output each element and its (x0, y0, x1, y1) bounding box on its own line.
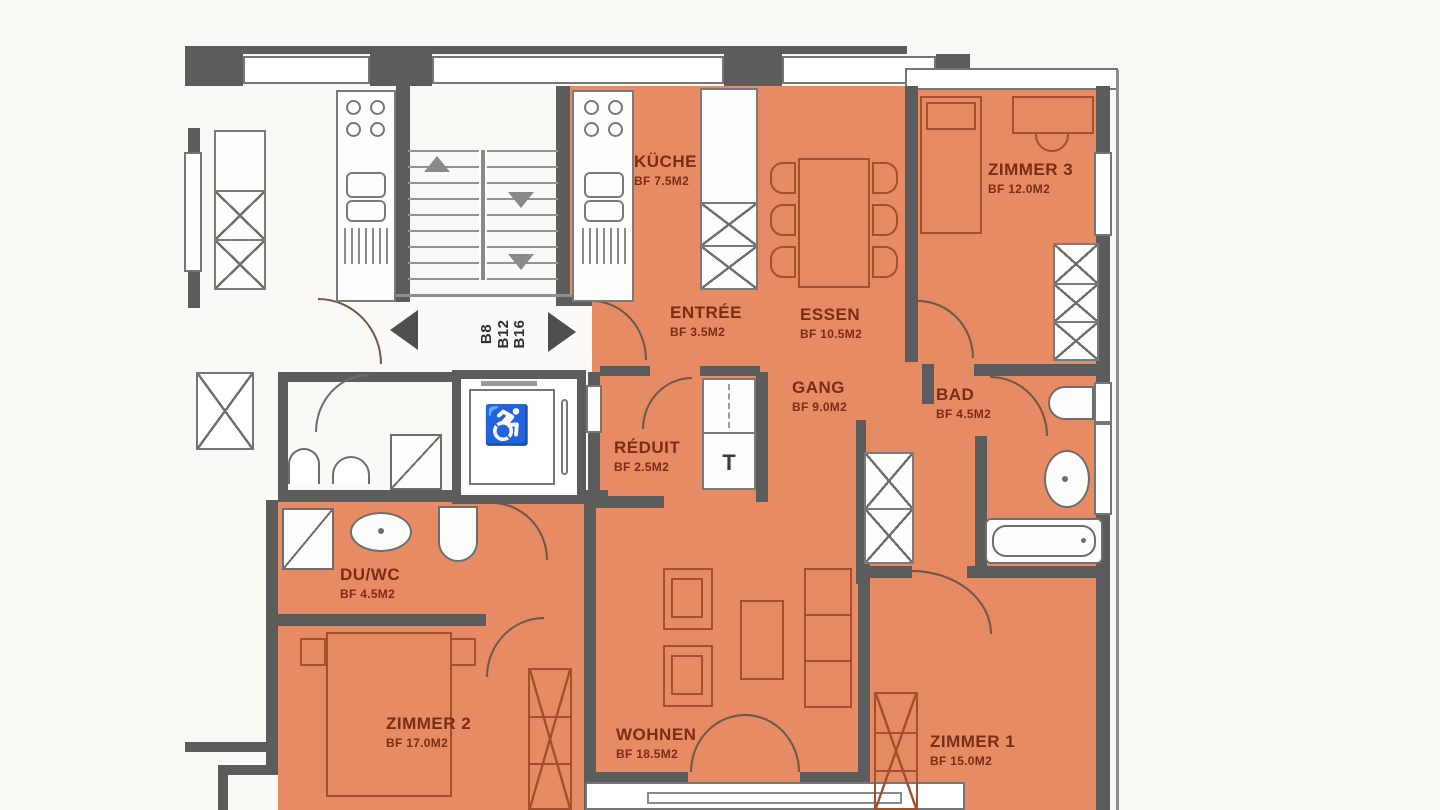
door-panel (586, 385, 602, 433)
wardrobe (1053, 243, 1099, 361)
bathtub (985, 518, 1103, 564)
wardrobe-divider (530, 763, 570, 765)
sink (584, 200, 624, 222)
unit-line: B12 (496, 319, 513, 348)
closet-shaft-line (728, 384, 730, 428)
door-arc-neighbor-bath (315, 374, 369, 432)
stair-direction-up-icon (424, 156, 450, 172)
wardrobe-x-cell (1055, 321, 1097, 359)
sofa-cushion-line (806, 660, 850, 662)
room-label-gang: GANGBF 9.0M2 (792, 378, 847, 414)
toilet (1048, 386, 1094, 420)
dining-chair (770, 246, 796, 278)
stair-direction-down-icon (508, 254, 534, 270)
window (432, 56, 724, 84)
wall-segment (278, 614, 486, 626)
unit-line: B16 (512, 319, 529, 348)
dining-chair (770, 162, 796, 194)
room-label-zimmer3: ZIMMER 3BF 12.0M2 (988, 160, 1073, 196)
wall-segment (600, 366, 650, 376)
room-label-duwc: DU/WCBF 4.5M2 (340, 565, 400, 601)
washbasin-drain (378, 528, 384, 534)
closet-divider (704, 432, 754, 434)
wardrobe-x-cell (1055, 245, 1097, 283)
window (905, 68, 1118, 90)
cabinet-x-cell (702, 245, 756, 288)
armchair (663, 645, 713, 707)
wall-segment (858, 566, 912, 578)
room-label-reduit: RÉDUITBF 2.5M2 (614, 438, 680, 474)
armchair-cushion (671, 655, 703, 695)
wall-segment (185, 54, 243, 86)
wardrobe-x-cell (1055, 283, 1097, 321)
toilet (438, 506, 478, 562)
dining-chair (872, 204, 898, 236)
wardrobe (528, 668, 572, 810)
wall-segment (922, 364, 934, 404)
coffee-table (740, 600, 784, 680)
room-label-kueche: KÜCHEBF 7.5M2 (634, 152, 697, 188)
unit-line: B8 (479, 319, 496, 348)
nightstand (450, 638, 476, 666)
washbasin (332, 456, 370, 484)
dining-chair (872, 246, 898, 278)
wardrobe-x-cell (866, 508, 912, 562)
desk (1012, 96, 1094, 134)
neighbor-tall-cabinet (214, 130, 266, 290)
appliance-hatch (344, 228, 388, 264)
appliance-hatch (582, 228, 626, 264)
neighbor-kitchen-counter (336, 90, 396, 302)
toilet (288, 448, 320, 484)
washbasin-drain (1062, 476, 1068, 482)
sink (346, 172, 386, 198)
dining-chair (770, 204, 796, 236)
dining-chair (872, 162, 898, 194)
shower (282, 508, 334, 570)
wall-segment (700, 366, 760, 376)
sink (346, 200, 386, 222)
cabinet-x-cell (702, 202, 756, 245)
wall-segment (974, 364, 1105, 376)
room-label-zimmer1: ZIMMER 1BF 15.0M2 (930, 732, 1015, 768)
wall-segment (266, 500, 278, 772)
wall-segment (278, 372, 288, 500)
room-label-zimmer2: ZIMMER 2BF 17.0M2 (386, 714, 471, 750)
tumbler-closet: T (702, 378, 756, 490)
wardrobe (874, 692, 918, 810)
entry-arrow-left-icon (390, 310, 418, 350)
wheelchair-icon: ♿ (483, 407, 530, 445)
elevator: ♿ (452, 370, 586, 504)
balcony-sill-line (647, 792, 902, 804)
armchair-cushion (671, 578, 703, 618)
sofa-cushion-line (806, 614, 850, 616)
pillow (926, 102, 976, 130)
cabinet-x-cell (216, 239, 264, 288)
unit-label: B8 B12 B16 (462, 292, 546, 376)
wall-segment (905, 296, 918, 362)
floor-plan: B8 B12 B16 ♿ (0, 0, 1440, 810)
wall-segment (584, 500, 596, 810)
wall-segment (905, 86, 918, 300)
wardrobe-divider (876, 770, 916, 772)
room-label-wohnen: WOHNENBF 18.5M2 (616, 725, 696, 761)
window (243, 56, 370, 84)
wardrobe-x-cell (866, 454, 912, 508)
kitchen-tall-cabinet (700, 88, 758, 290)
stair-rail (479, 150, 487, 280)
cabinet-x-cell (216, 190, 264, 239)
wardrobe-divider (530, 716, 570, 718)
window (184, 152, 202, 272)
armchair (663, 568, 713, 630)
wall-segment (596, 496, 664, 508)
hall-wardrobe (864, 452, 914, 564)
window (1094, 152, 1112, 236)
wall-segment (992, 566, 1105, 578)
room-label-entree: ENTRÉEBF 3.5M2 (670, 303, 742, 339)
wall-face-line (1116, 70, 1119, 810)
wall-segment (556, 86, 570, 302)
wall-segment (185, 742, 270, 752)
tumbler-label: T (704, 438, 754, 488)
kitchen-counter (572, 90, 634, 302)
dining-table (798, 158, 870, 288)
bathtub-drain (1081, 538, 1086, 543)
elevator-rail (561, 399, 568, 475)
window (1094, 382, 1112, 423)
entry-arrow-right-icon (548, 312, 576, 352)
room-label-essen: ESSENBF 10.5M2 (800, 305, 862, 341)
sofa (804, 568, 852, 708)
shower (390, 434, 442, 490)
nightstand (300, 638, 326, 666)
door-arc-neighbor (318, 298, 382, 364)
stair-direction-down-icon (508, 192, 534, 208)
wall-segment (370, 54, 432, 86)
wall-segment (1096, 86, 1110, 152)
wall-segment (724, 54, 782, 86)
wall-segment (185, 46, 907, 54)
sink (584, 172, 624, 198)
wall-segment (756, 372, 768, 502)
shaft-window (196, 372, 254, 450)
room-label-bad: BADBF 4.5M2 (936, 385, 991, 421)
elevator-door-line (481, 381, 537, 386)
window (1094, 423, 1112, 515)
wardrobe-divider (876, 732, 916, 734)
